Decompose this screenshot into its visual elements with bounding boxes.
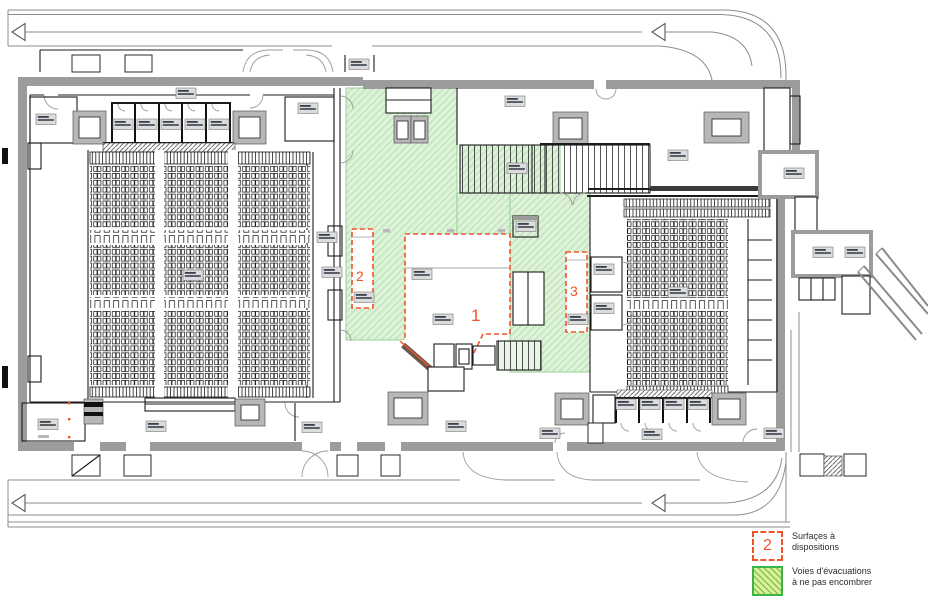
zone-2-number: 2: [356, 268, 364, 284]
legend-surface-label: Surfaçes à dispositions: [792, 531, 878, 554]
zone-1-number: 1: [471, 306, 480, 326]
legend-evacuation-swatch: [752, 566, 783, 596]
legend-surface-swatch: 2: [752, 531, 783, 561]
legend-evacuation-row: Voies d'évacuations à ne pas encombrer: [752, 566, 927, 596]
bottom-road-arrow-center: [652, 495, 665, 512]
legend-evacuation-label: Voies d'évacuations à ne pas encombrer: [792, 566, 878, 589]
bottom-corridor: [22, 398, 299, 441]
grand-stair: [460, 144, 650, 193]
top-road-arrow-center: [652, 24, 665, 41]
bottom-road-arrow-left: [12, 495, 25, 512]
left-auditorium: [28, 88, 342, 402]
right-seating: [624, 199, 772, 395]
legend-surface-row: 2 Surfaçes à dispositions: [752, 531, 927, 561]
top-road-arrow-left: [12, 24, 25, 41]
zone-3-number: 3: [570, 283, 578, 299]
stage-vomitory: [400, 340, 541, 391]
legend: 2 Surfaçes à dispositions Voies d'évacua…: [752, 531, 927, 601]
floor-plan-drawing: [0, 0, 928, 606]
floor-plan-page: 1 2 3 2 Surfaçes à dispositions Voies d'…: [0, 0, 928, 606]
right-annex: [760, 88, 928, 340]
legend-surface-number: 2: [763, 537, 772, 555]
